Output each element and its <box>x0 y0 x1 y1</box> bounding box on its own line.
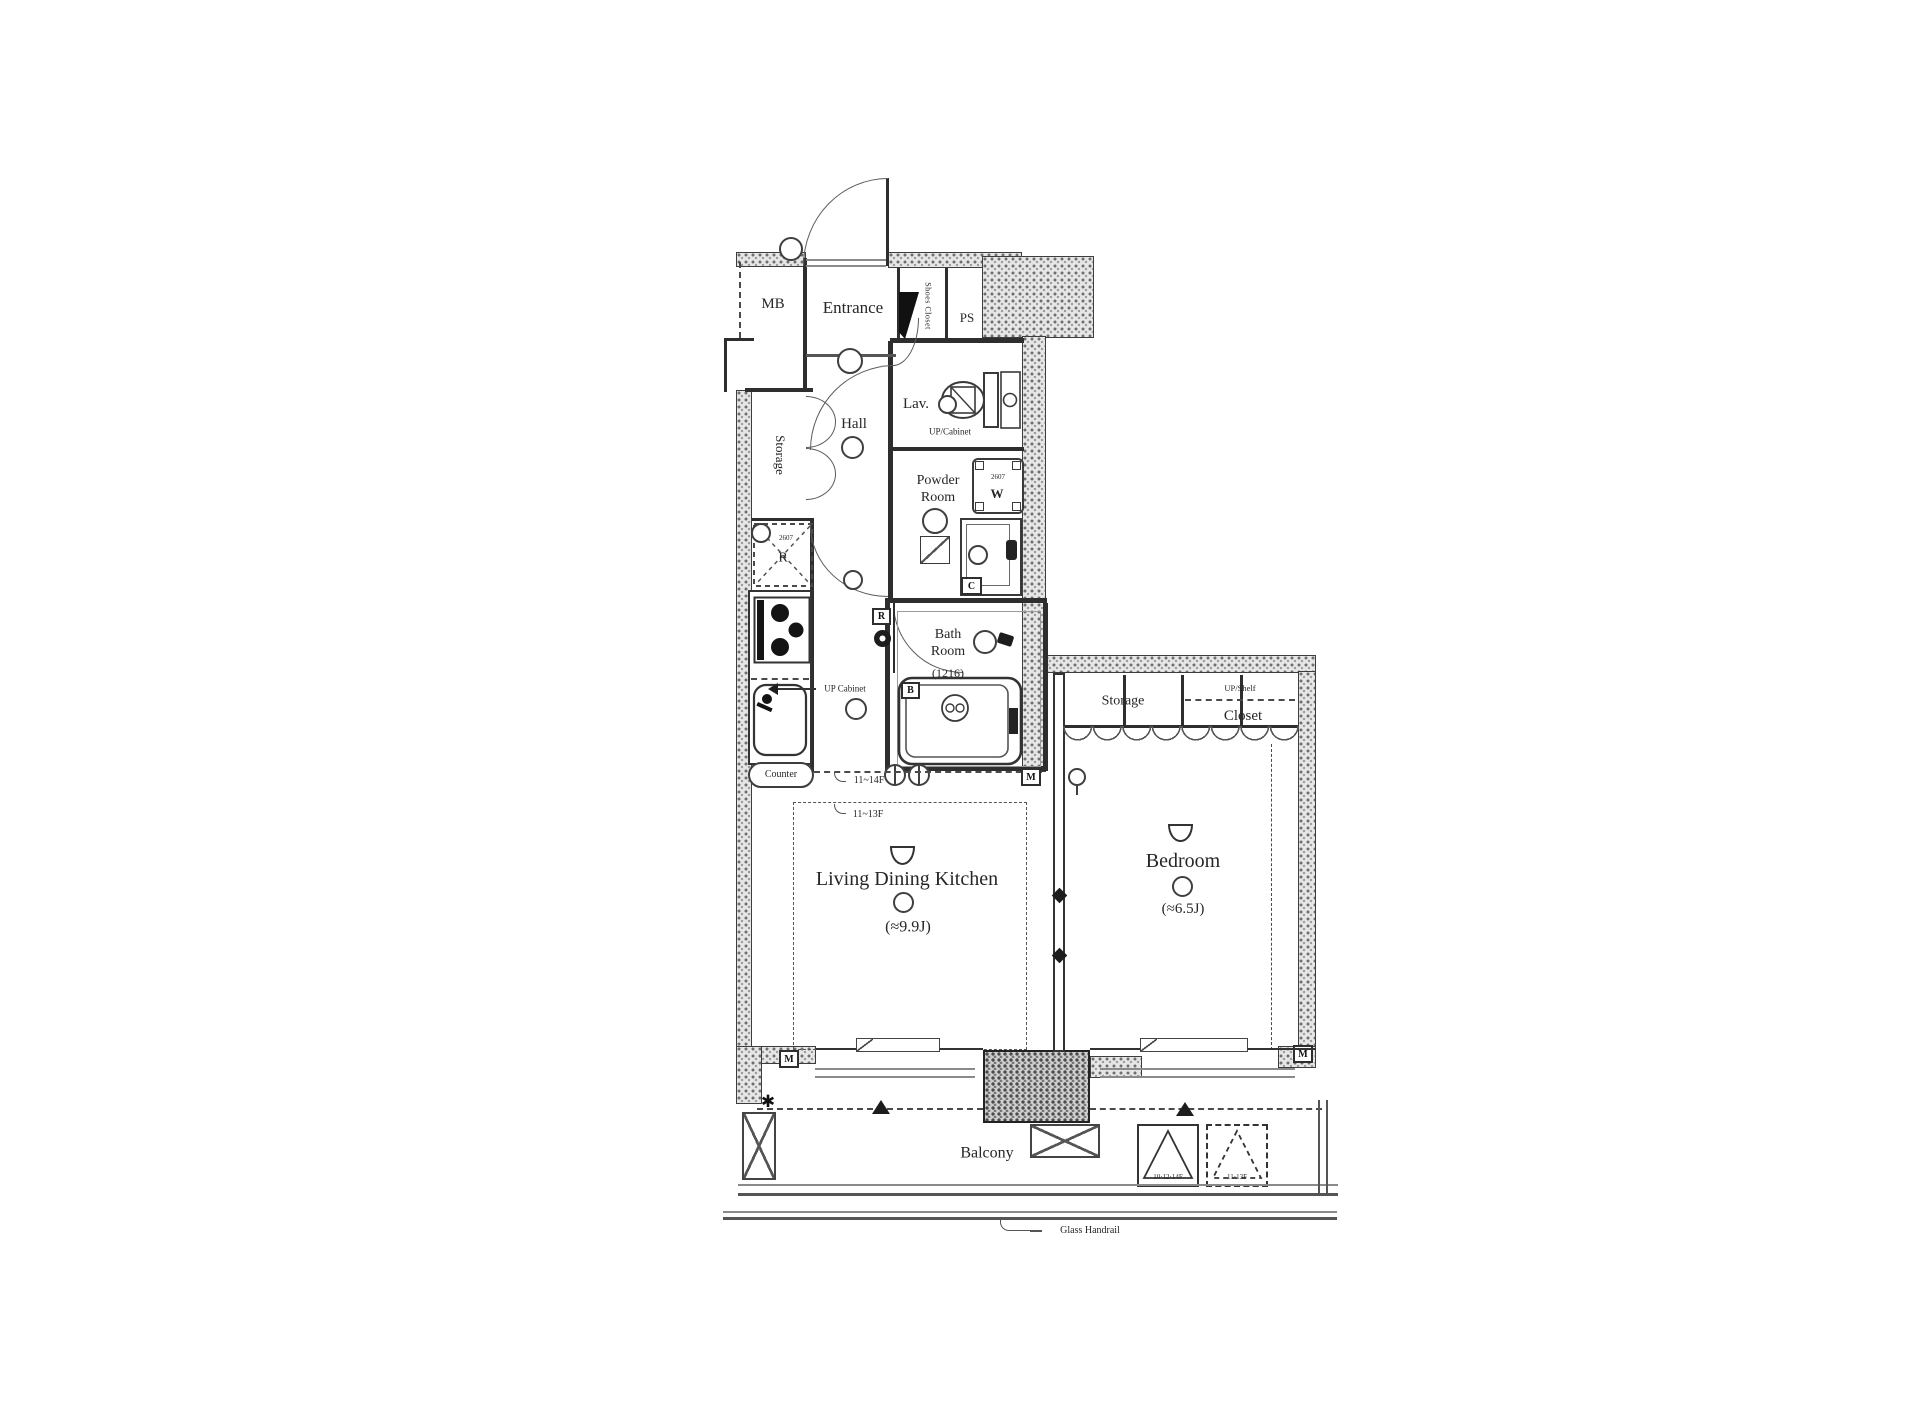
balcony-marker-triangle <box>872 1100 890 1114</box>
entry-door-arc <box>803 178 888 266</box>
storage-bifold-door <box>806 448 836 500</box>
label-ldk: Living Dining Kitchen <box>816 867 998 891</box>
wall-corridor-block <box>982 256 1094 338</box>
balcony-edge-line <box>738 1184 1338 1186</box>
bedroom-window-track <box>1100 1068 1295 1070</box>
label-up-cabinet-lav: UP/Cabinet <box>929 427 971 438</box>
washer-label: W <box>991 486 1004 502</box>
balcony-marker-triangle <box>1176 1102 1194 1116</box>
fridge-dim: 2607 <box>779 534 793 542</box>
wall-step-mb2 <box>724 338 727 392</box>
marker-box-r: R <box>872 608 891 625</box>
marker-box-m: M <box>779 1050 799 1068</box>
marker-box-b: B <box>901 682 920 699</box>
floor-line-upper-leader <box>834 772 846 782</box>
label-bath-room-size: (1216) <box>932 666 964 680</box>
wall-bath-right <box>1043 603 1048 771</box>
wall-bedroom-top <box>1044 655 1316 673</box>
label-lav: Lav. <box>903 395 929 413</box>
wall-storage-top <box>752 518 812 521</box>
label-bath-room: Bath Room <box>931 627 965 661</box>
up-cabinet-arrow <box>768 683 778 695</box>
hatch-dashed-label: 11·13F <box>1227 1173 1247 1181</box>
label-ldk-size: (≈9.9J) <box>885 917 931 936</box>
bedroom-wall-light-icon <box>1068 768 1086 786</box>
ldk-window-track <box>815 1076 975 1078</box>
counter-label: Counter <box>765 769 797 781</box>
stove-icon <box>753 596 811 664</box>
balcony-end-post <box>1318 1100 1328 1196</box>
wall-step-mb <box>724 338 754 341</box>
basin-icon <box>922 508 948 534</box>
label-up-shelf: UP/Shelf <box>1224 683 1255 693</box>
balcony-boundary-dash <box>757 1108 983 1110</box>
label-up-cabinet-kitchen: UP Cabinet <box>824 684 865 695</box>
bedroom-sensor-icon <box>1168 824 1193 842</box>
balcony-partition-left <box>742 1112 776 1180</box>
floor-line-upper-label: 11~14F <box>854 775 885 787</box>
bath-door-leaf <box>893 603 895 673</box>
fridge-outlet-icon <box>751 523 771 543</box>
marker-box-c: C <box>961 577 982 595</box>
ceiling-light-icon <box>843 570 863 590</box>
label-hall: Hall <box>841 415 867 433</box>
outlet-icon <box>908 764 930 786</box>
glass-handrail-line <box>723 1217 1337 1220</box>
label-entrance: Entrance <box>823 298 883 318</box>
marker-box-m: M <box>1021 768 1041 786</box>
label-shoes-closet: Shoes Closet <box>924 282 933 330</box>
ceiling-light-icon <box>837 348 863 374</box>
balcony-vent-box <box>1030 1124 1100 1158</box>
mb-dashed-edge <box>739 262 741 338</box>
bedroom-window <box>1140 1038 1248 1052</box>
wall-lav-powder <box>893 447 1024 451</box>
washer-dim: 2607 <box>991 473 1005 481</box>
floor-line-upper <box>814 771 1042 773</box>
label-closet: Closet <box>1224 707 1262 725</box>
shelf-dashed-line <box>1185 699 1295 701</box>
glass-handrail-leader <box>1000 1218 1030 1231</box>
ldk-window <box>856 1038 940 1052</box>
glass-handrail-line <box>723 1211 1337 1213</box>
balcony-edge-line <box>738 1193 1338 1196</box>
label-bedroom-size: (≈6.5J) <box>1162 900 1205 918</box>
closet-accordion-door <box>1063 726 1299 743</box>
label-bedroom: Bedroom <box>1146 849 1220 873</box>
up-cabinet-leader <box>778 688 816 690</box>
wall-mb-bottom <box>745 388 813 392</box>
label-ps: PS <box>960 310 974 326</box>
bath-control-icon <box>874 630 891 647</box>
label-balcony: Balcony <box>960 1143 1013 1162</box>
floor-plan: 2607 W C B R 2607 R Counter <box>0 0 1911 1425</box>
bedroom-wall-light-stem <box>1076 786 1078 795</box>
vanity-faucet-icon <box>968 545 988 565</box>
wall-mb-right <box>803 258 807 392</box>
bedroom-light-icon <box>1172 876 1193 897</box>
ceiling-light-icon <box>841 436 864 459</box>
ldk-window-track <box>815 1068 975 1070</box>
label-bedroom-storage: Storage <box>1102 694 1145 711</box>
hatch-solid-label: 10·12·14F <box>1153 1173 1183 1181</box>
label-mb: MB <box>761 295 784 313</box>
wall-bedroom-bottom-left <box>1090 1056 1142 1078</box>
sink-icon <box>751 682 809 758</box>
outlet-icon <box>884 764 906 786</box>
floor-line-lower-label: 11~13F <box>853 809 884 821</box>
wall-right <box>1298 671 1316 1063</box>
wall-shoes-ps <box>945 268 948 342</box>
vanity-fitting <box>1006 540 1017 560</box>
meter-icon <box>779 237 803 261</box>
wall-bottom-left-corner <box>736 1046 762 1104</box>
ceiling-light-icon <box>845 698 867 720</box>
glass-handrail-leader-dash <box>1030 1230 1042 1232</box>
balcony-boundary-dash <box>1090 1108 1322 1110</box>
bedroom-window-track <box>1100 1076 1295 1078</box>
label-powder-room: Powder Room <box>917 473 960 507</box>
counter-divider <box>751 678 809 680</box>
lav-light-icon <box>938 395 957 414</box>
balcony-star-marker: ✱ <box>761 1092 775 1112</box>
closet-divider <box>1181 675 1184 727</box>
mirror-cabinet-icon <box>920 536 950 564</box>
fridge-label: R <box>778 551 787 568</box>
bedroom-dashed-line <box>1271 744 1272 1050</box>
shower-mixer-icon <box>973 630 997 654</box>
label-storage-hall: Storage <box>772 435 788 475</box>
pillar <box>983 1050 1090 1123</box>
label-glass-handrail: Glass Handrail <box>1060 1225 1120 1237</box>
